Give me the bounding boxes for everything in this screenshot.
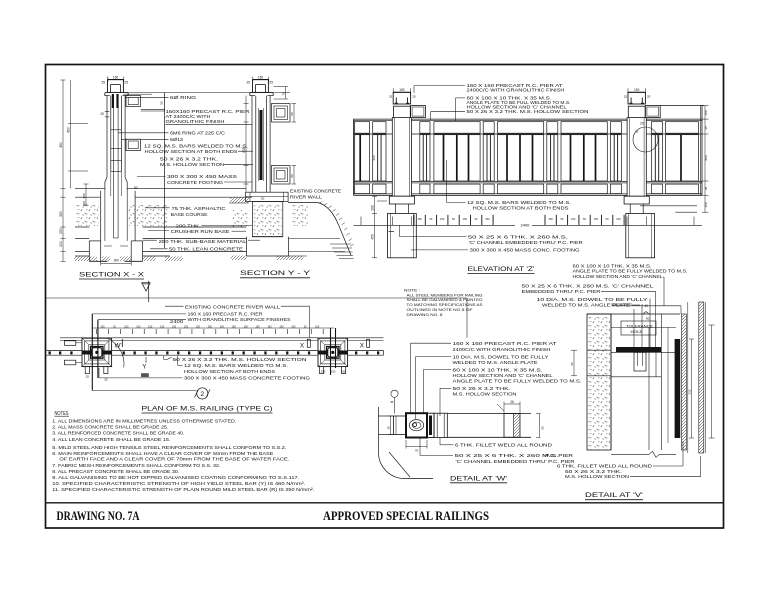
svg-text:W': W': [115, 342, 122, 349]
svg-text:EMBEDDED THRU' P.C. PIER: EMBEDDED THRU' P.C. PIER: [522, 289, 601, 294]
svg-text:60 X 100 X 10 THK. X 35 M.S.: 60 X 100 X 10 THK. X 35 M.S.: [453, 367, 543, 372]
svg-text:TOLERANCE: TOLERANCE: [626, 324, 654, 328]
svg-text:DRAWING NO. 7A: DRAWING NO. 7A: [57, 509, 140, 523]
svg-text:20: 20: [101, 112, 105, 116]
svg-text:25: 25: [269, 81, 273, 85]
svg-text:11. SPECIFIED CHARACTERISTIC S: 11. SPECIFIED CHARACTERISTIC STRENGTH OF…: [52, 487, 314, 492]
svg-text:PLAN OF M.S. RAILING (TYPE: PLAN OF M.S. RAILING (TYPE C): [142, 406, 273, 413]
svg-text:35: 35: [704, 187, 708, 191]
svg-text:150: 150: [399, 88, 405, 92]
svg-text:6Ø13: 6Ø13: [170, 137, 184, 142]
svg-text:CONCRETE FOOTING: CONCRETE FOOTING: [167, 180, 224, 185]
svg-text:350: 350: [59, 211, 63, 217]
svg-text:ELEVATION AT 'Z': ELEVATION AT 'Z': [468, 266, 535, 273]
svg-text:2. ALL MASS CONCRETE SHALL BE: 2. ALL MASS CONCRETE SHALL BE GRADE 25.: [52, 425, 168, 430]
svg-text:150: 150: [704, 202, 708, 207]
svg-text:HOLE: HOLE: [631, 330, 644, 334]
svg-text:250: 250: [59, 228, 63, 234]
svg-text:EXISTING CONCRETE: EXISTING CONCRETE: [290, 189, 341, 194]
svg-text:50 X 26 X 3.2 THK.: 50 X 26 X 3.2 THK.: [453, 386, 511, 391]
svg-text:25: 25: [647, 94, 651, 98]
svg-text:100: 100: [82, 193, 86, 198]
svg-text:6 THK. FILLET WELD ALL ROUND: 6 THK. FILLET WELD ALL ROUND: [455, 442, 552, 447]
svg-text:SHALL BE GALVANISED & PAINTED: SHALL BE GALVANISED & PAINTED: [407, 298, 483, 302]
svg-text:150: 150: [184, 325, 189, 328]
svg-text:150: 150: [232, 325, 237, 328]
svg-text:150: 150: [244, 325, 249, 328]
svg-text:25: 25: [412, 94, 416, 98]
svg-text:1. ALL DIMENSIONS ARE IN MILLI: 1. ALL DIMENSIONS ARE IN MILLIMETRES UNL…: [52, 419, 236, 424]
svg-text:6M6 RING AT 225 C/C: 6M6 RING AT 225 C/C: [170, 130, 225, 135]
svg-text:10. SPECIFIED CHARACTERISTIC S: 10. SPECIFIED CHARACTERISTIC STRENGTH OF…: [52, 481, 305, 486]
svg-text:150: 150: [258, 75, 264, 79]
svg-text:25: 25: [124, 81, 128, 85]
svg-text:160 X 160 PRECAST R.C. PIER: 160 X 160 PRECAST R.C. PIER: [188, 311, 263, 316]
svg-text:X: X: [360, 343, 364, 350]
svg-text:100: 100: [82, 201, 86, 206]
svg-text:150: 150: [341, 369, 346, 373]
svg-text:800: 800: [704, 155, 708, 160]
svg-text:50 X 26 X 3.2 THK.: 50 X 26 X 3.2 THK.: [160, 156, 218, 161]
svg-text:SECTION X - X: SECTION X - X: [79, 272, 145, 279]
svg-text:10 DIA. M.S. DOWEL TO BE FULLY: 10 DIA. M.S. DOWEL TO BE FULLY: [537, 297, 648, 302]
svg-text:OUTLINED IN NOTE NO.5 OF: OUTLINED IN NOTE NO.5 OF: [407, 308, 474, 312]
svg-text:P.C. PIER: P.C. PIER: [545, 453, 573, 458]
svg-text:45: 45: [390, 400, 394, 404]
svg-text:250 THK. SUB-BASE MATERIAL: 250 THK. SUB-BASE MATERIAL: [159, 239, 248, 244]
svg-text:150: 150: [256, 325, 261, 328]
svg-text:50: 50: [541, 426, 545, 430]
svg-text:12 SQ. M.S. BARS WELDED TO M.S: 12 SQ. M.S. BARS WELDED TO M.S.: [184, 363, 288, 368]
svg-text:150: 150: [196, 325, 201, 328]
svg-text:50 X 26 X 3.2 THK. M.S. HOLLOW: 50 X 26 X 3.2 THK. M.S. HOLLOW SECTION: [467, 109, 589, 114]
svg-text:300 X 300 X 450 MASS CONCRETE: 300 X 300 X 450 MASS CONCRETE FOOTING: [184, 376, 311, 381]
svg-text:25: 25: [389, 94, 393, 98]
svg-text:150: 150: [279, 325, 284, 328]
svg-text:DRAWING NO. 8: DRAWING NO. 8: [407, 313, 443, 317]
svg-text:50 X 26 X 3.2 THK. M.S. HOLLO: 50 X 26 X 3.2 THK. M.S. HOLLOW SECTION: [173, 357, 307, 362]
svg-text:70: 70: [415, 448, 419, 452]
svg-text:35: 35: [704, 126, 708, 130]
svg-text:WELDED TO M.S. ANGLE PLATE: WELDED TO M.S. ANGLE PLATE: [453, 360, 538, 365]
svg-text:BASE COURSE: BASE COURSE: [171, 212, 208, 217]
svg-text:NOTES: NOTES: [55, 411, 70, 417]
svg-text:150: 150: [463, 217, 468, 221]
svg-text:450: 450: [59, 142, 63, 148]
svg-text:200: 200: [370, 205, 374, 211]
svg-text:HOLLOW SECTION AND 'C' CHANNEL: HOLLOW SECTION AND 'C' CHANNEL: [573, 274, 664, 279]
svg-text:150: 150: [616, 217, 621, 221]
svg-text:26: 26: [510, 400, 514, 404]
svg-text:160 X 160 PRECAST R.C. PIER AT: 160 X 160 PRECAST R.C. PIER AT: [453, 341, 557, 346]
svg-text:CRUSHER RUN BASE: CRUSHER RUN BASE: [171, 229, 230, 234]
svg-text:HOLLOW SECTION AT BOTH ENDS: HOLLOW SECTION AT BOTH ENDS: [145, 149, 238, 154]
svg-text:5. MILD STEEL AND HIGH TENSILE: 5. MILD STEEL AND HIGH TENSILE STEEL REI…: [52, 445, 286, 450]
svg-text:ANGLE PLATE TO BE FULLY WELDED: ANGLE PLATE TO BE FULLY WELDED TO M.S.: [453, 379, 582, 384]
svg-text:12 SQ. M.S. BARS WELDED TO M.S: 12 SQ. M.S. BARS WELDED TO M.S.: [467, 200, 571, 205]
svg-text:25: 25: [247, 81, 251, 85]
svg-text:TO MATCHING SPECIFICATIONS AS: TO MATCHING SPECIFICATIONS AS: [407, 303, 484, 307]
svg-text:8. ALL PRECAST CONCRETE SHALL: 8. ALL PRECAST CONCRETE SHALL BE GRADE 3…: [52, 469, 179, 474]
svg-text:150: 150: [548, 217, 553, 221]
svg-text:75 THK. ASPHALTIC: 75 THK. ASPHALTIC: [172, 206, 226, 211]
svg-text:300 X 300 X 450 MASS CONC. FOO: 300 X 300 X 450 MASS CONC. FOOTING: [470, 248, 581, 253]
svg-text:150: 150: [113, 75, 119, 79]
svg-text:6 THK. FILLET WELD ALL ROUND: 6 THK. FILLET WELD ALL ROUND: [557, 464, 652, 469]
svg-text:3. ALL REINFORCED CONCRETE SHA: 3. ALL REINFORCED CONCRETE SHALL BE GRAD…: [52, 431, 184, 436]
svg-text:X: X: [300, 343, 304, 350]
svg-text:150: 150: [634, 88, 640, 92]
svg-text:50 X 25 X 6 THK. X 260 M.S.: 50 X 25 X 6 THK. X 260 M.S.: [468, 234, 568, 239]
svg-text:SECTION Y - Y: SECTION Y - Y: [240, 270, 311, 277]
svg-text:'V': 'V': [635, 130, 639, 134]
svg-text:OF EARTH FACE AND A CLEAR COVE: OF EARTH FACE AND A CLEAR COVER OF 70mm …: [59, 456, 289, 461]
svg-text:50: 50: [290, 112, 294, 116]
svg-text:150: 150: [136, 325, 141, 328]
svg-text:495: 495: [372, 155, 376, 161]
svg-text:4. ALL LEAN CONCRETE SHALL BE: 4. ALL LEAN CONCRETE SHALL BE GRADE 15.: [52, 437, 170, 442]
svg-text:WITH GRANOLITHIC SURFACE FINIS: WITH GRANOLITHIC SURFACE FINISHES: [188, 317, 291, 322]
svg-text:50: 50: [261, 197, 265, 201]
svg-text:HOLLOW SECTION AT BOTH ENDS: HOLLOW SECTION AT BOTH ENDS: [473, 205, 569, 210]
svg-text:25: 25: [624, 94, 628, 98]
svg-text:25: 25: [86, 375, 90, 379]
svg-text:332: 332: [687, 389, 691, 394]
svg-text:150: 150: [315, 325, 320, 328]
svg-text:200: 200: [59, 241, 63, 247]
svg-text:150: 150: [321, 369, 326, 373]
svg-text:DETAIL AT 'V': DETAIL AT 'V': [585, 492, 643, 499]
svg-text:10 DIA. M.S. DOWEL TO BE FULLY: 10 DIA. M.S. DOWEL TO BE FULLY: [453, 354, 549, 359]
svg-text:150: 150: [172, 325, 177, 328]
svg-text:150: 150: [594, 217, 599, 221]
svg-text:150: 150: [417, 217, 422, 221]
svg-text:Y: Y: [142, 364, 146, 371]
svg-text:50 THK. LEAN CONCRETE: 50 THK. LEAN CONCRETE: [169, 246, 243, 251]
svg-text:150: 150: [148, 325, 153, 328]
svg-text:300: 300: [114, 259, 120, 263]
svg-text:150: 150: [440, 217, 445, 221]
svg-text:150: 150: [100, 325, 105, 328]
svg-text:7. FABRIC MESH REINFORCEMENTS: 7. FABRIC MESH REINFORCEMENTS SHALL CONF…: [52, 463, 220, 468]
svg-text:20: 20: [640, 122, 644, 126]
svg-text:2: 2: [201, 391, 205, 398]
svg-text:450: 450: [66, 127, 70, 133]
svg-text:9. ALL GALVANISING TO BE HOT D: 9. ALL GALVANISING TO BE HOT DIPPED GALV…: [52, 475, 299, 480]
svg-text:300 X 300 X 450 MASS: 300 X 300 X 450 MASS: [167, 174, 237, 179]
svg-text:ANGLE PLATE TO BE FULLY WELDED: ANGLE PLATE TO BE FULLY WELDED TO M.S.: [573, 269, 688, 274]
svg-text:150: 150: [485, 217, 490, 221]
svg-text:35: 35: [386, 426, 390, 430]
svg-text:2400C/C WITH GRANOLITHIC FINIS: 2400C/C WITH GRANOLITHIC FINISH: [453, 347, 551, 352]
svg-text:60: 60: [646, 317, 650, 321]
svg-text:GRANOLITHIC FINISH: GRANOLITHIC FINISH: [166, 119, 225, 124]
svg-text:150: 150: [208, 325, 213, 328]
svg-text:DETAIL AT 'W': DETAIL AT 'W': [450, 475, 507, 482]
svg-text:150: 150: [220, 325, 225, 328]
svg-text:ALL STEEL MEMBERS FOR RAILING: ALL STEEL MEMBERS FOR RAILING: [407, 293, 483, 297]
svg-text:150: 150: [267, 325, 272, 328]
svg-text:150: 150: [704, 110, 708, 115]
svg-text:12 SQ. M.S. BARS WELDED TO M.S: 12 SQ. M.S. BARS WELDED TO M.S.: [144, 143, 248, 148]
svg-text:800: 800: [242, 147, 246, 153]
svg-text:150: 150: [160, 325, 165, 328]
svg-text:25: 25: [570, 362, 574, 366]
svg-text:75: 75: [281, 92, 285, 96]
svg-text:50: 50: [160, 101, 164, 105]
svg-text:150: 150: [124, 325, 129, 328]
svg-text:M.S. HOLLOW SECTION: M.S. HOLLOW SECTION: [565, 474, 629, 479]
svg-text:NOTE :: NOTE :: [404, 289, 420, 293]
svg-text:50: 50: [134, 186, 138, 190]
svg-text:WELDED TO M.S. ANGLE PLATE: WELDED TO M.S. ANGLE PLATE: [542, 303, 630, 308]
svg-text:2400: 2400: [521, 223, 531, 228]
svg-text:'C' CHANNEL EMBEDDED THRU' P.C: 'C' CHANNEL EMBEDDED THRU' P.C. PIER: [469, 240, 583, 245]
svg-text:M.S. HOLLOW SECTION: M.S. HOLLOW SECTION: [453, 392, 517, 397]
svg-text:200 THK.: 200 THK.: [176, 223, 201, 228]
svg-text:150: 150: [331, 369, 336, 373]
svg-text:50: 50: [290, 174, 294, 178]
svg-text:EXISTING CONCRETE RIVER WALL: EXISTING CONCRETE RIVER WALL: [185, 304, 281, 309]
svg-text:6Ø RING: 6Ø RING: [170, 95, 197, 100]
svg-text:150: 150: [571, 217, 576, 221]
svg-text:150: 150: [291, 325, 296, 328]
svg-text:50 X 25 X 6 THK. X 260 M.S.: 50 X 25 X 6 THK. X 260 M.S.: [455, 453, 559, 458]
svg-text:450: 450: [370, 234, 374, 240]
svg-text:60 X 100 X 10 THK. X 35 M.S.: 60 X 100 X 10 THK. X 35 M.S.: [573, 263, 652, 268]
svg-text:RIVER WALL: RIVER WALL: [290, 194, 323, 199]
svg-text:HOLLOW SECTION AND 'C' CHANNEL: HOLLOW SECTION AND 'C' CHANNEL: [453, 373, 554, 378]
svg-text:APPROVED SPECIAL RAILINGS: APPROVED SPECIAL RAILINGS: [323, 509, 489, 523]
svg-text:25: 25: [102, 81, 106, 85]
svg-text:2400C/C WITH GRANOLITHIC FINIS: 2400C/C WITH GRANOLITHIC FINISH: [467, 88, 565, 93]
svg-text:M.S. HOLLOW SECTION: M.S. HOLLOW SECTION: [160, 162, 224, 167]
svg-text:HOLLOW SECTION AT BOTH ENDS: HOLLOW SECTION AT BOTH ENDS: [184, 369, 275, 374]
svg-text:6. MAIN REINFORCEMENTS SHALL H: 6. MAIN REINFORCEMENTS SHALL HAVE A CLEA…: [52, 451, 273, 456]
svg-text:50 X 25 X 6 THK. X 260 M.S. 'C: 50 X 25 X 6 THK. X 260 M.S. 'C' CHANNEL: [522, 283, 655, 288]
